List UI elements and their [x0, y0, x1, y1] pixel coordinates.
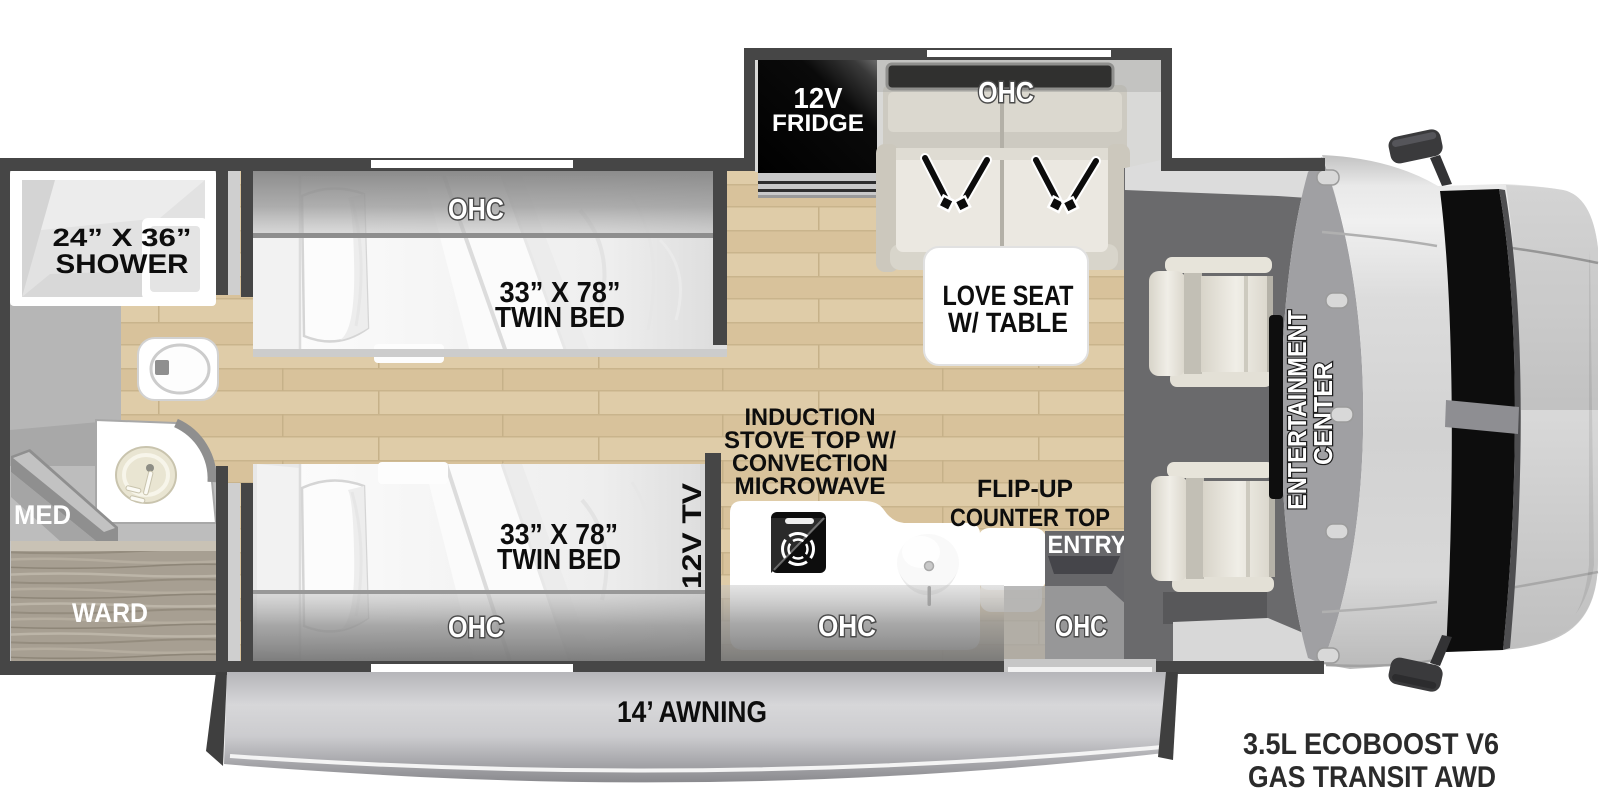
- svg-text:GAS TRANSIT AWD: GAS TRANSIT AWD: [1248, 761, 1496, 789]
- svg-text:12V TV: 12V TV: [677, 483, 707, 589]
- svg-text:MED: MED: [14, 500, 71, 530]
- svg-text:ENTRY: ENTRY: [1048, 531, 1127, 559]
- svg-text:TWIN BED: TWIN BED: [495, 302, 625, 334]
- svg-text:OHC: OHC: [448, 194, 504, 226]
- svg-text:FLIP-UP: FLIP-UP: [977, 475, 1073, 503]
- svg-text:14’ AWNING: 14’ AWNING: [617, 696, 767, 729]
- svg-text:OHC: OHC: [818, 611, 876, 643]
- svg-text:MICROWAVE: MICROWAVE: [735, 473, 886, 500]
- svg-text:SHOWER: SHOWER: [56, 249, 189, 279]
- svg-text:WARD: WARD: [72, 598, 148, 628]
- svg-text:OHC: OHC: [448, 612, 504, 644]
- svg-text:3.5L ECOBOOST V6: 3.5L ECOBOOST V6: [1243, 728, 1499, 761]
- svg-text:24” X 36”: 24” X 36”: [53, 224, 192, 252]
- svg-text:FRIDGE: FRIDGE: [772, 110, 864, 137]
- svg-text:COUNTER TOP: COUNTER TOP: [950, 504, 1110, 532]
- svg-text:OHC: OHC: [978, 77, 1034, 109]
- svg-text:TWIN BED: TWIN BED: [497, 544, 621, 576]
- svg-text:OHC: OHC: [1055, 611, 1107, 643]
- svg-text:W/ TABLE: W/ TABLE: [948, 307, 1068, 338]
